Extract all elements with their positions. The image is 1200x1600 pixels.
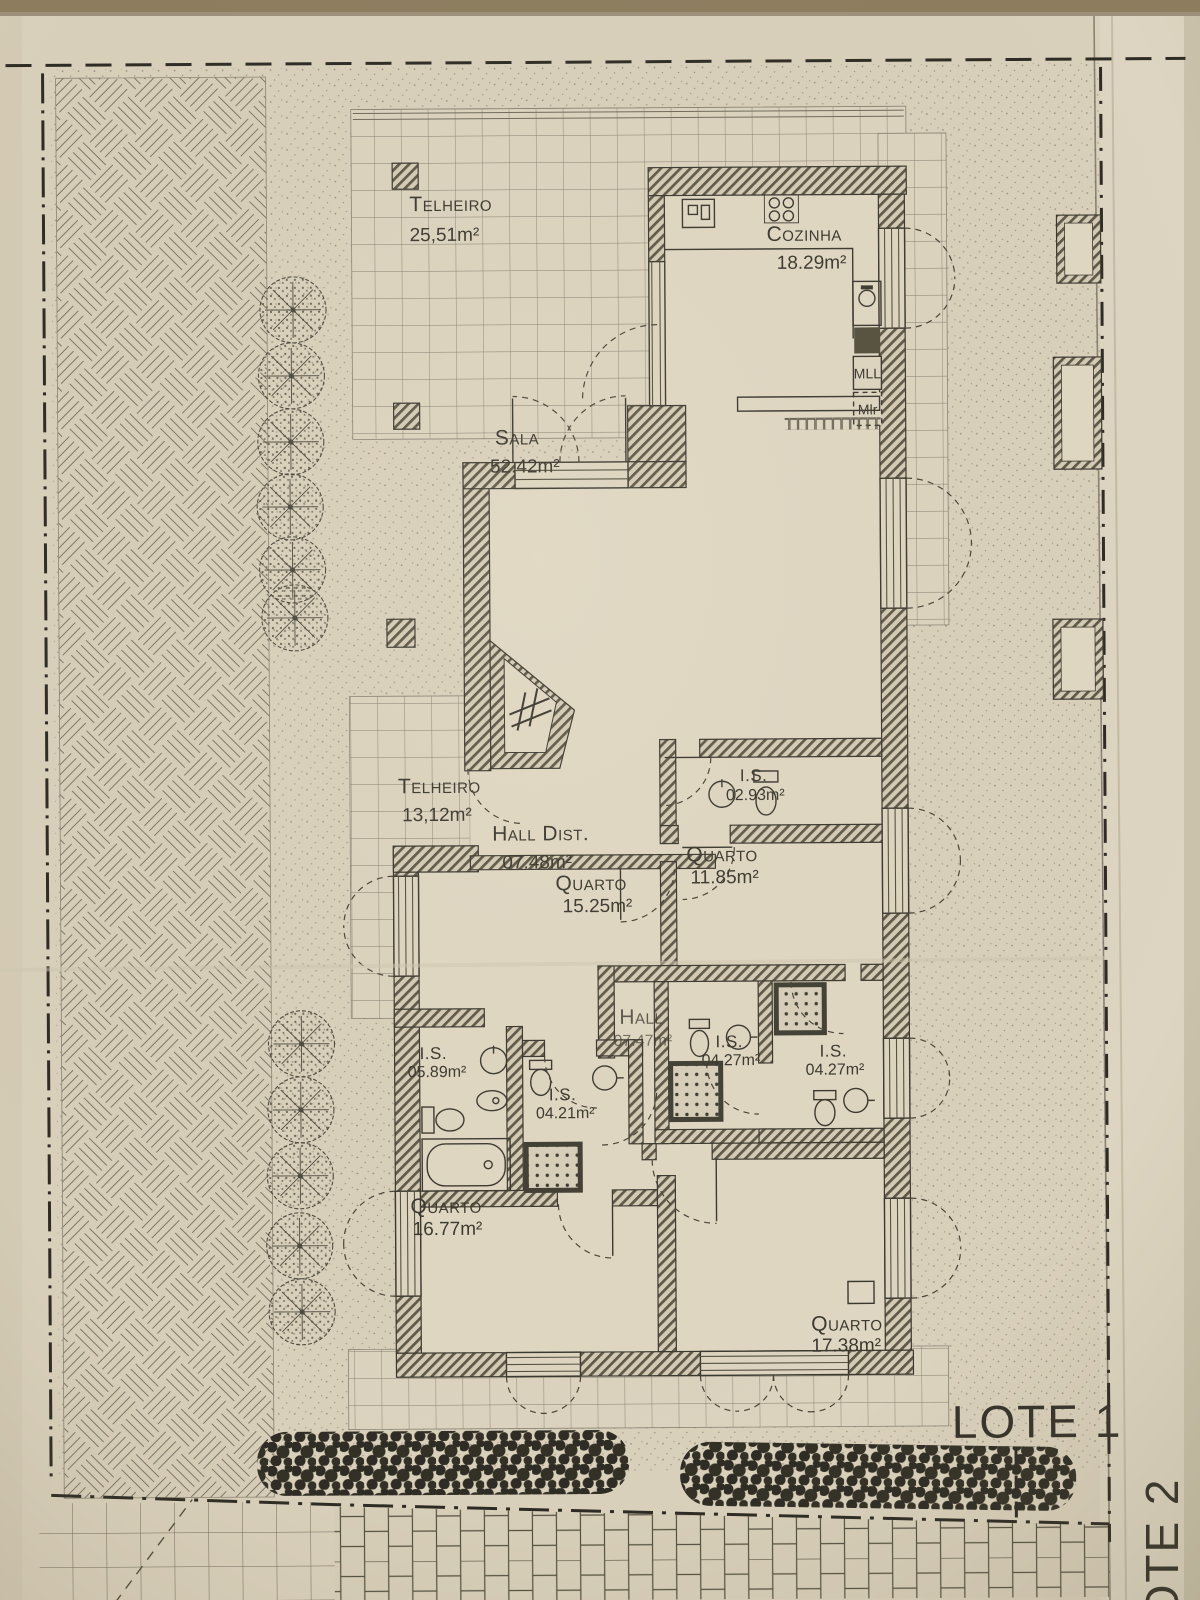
- paving-basketweave: [56, 77, 275, 1498]
- shower-icon: [671, 1063, 721, 1119]
- room-area-hall: 07.47m²: [613, 1033, 672, 1050]
- appliance-label-mll: MLL: [854, 365, 882, 381]
- sink-icon: [593, 1066, 617, 1090]
- room-label-cozinha: Cozinha: [766, 223, 841, 246]
- room-label-is-421: I.S.: [549, 1085, 577, 1104]
- room-area-is-421: 04.21m²: [536, 1105, 595, 1122]
- shower-icon: [776, 985, 824, 1033]
- room-area-is-293: 02.93m²: [726, 787, 785, 804]
- room-label-hall-dist: Hall Dist.: [492, 822, 589, 846]
- room-label-is-427-left: I.S.: [715, 1032, 743, 1051]
- room-label-is-427-right: I.S.: [819, 1041, 847, 1060]
- toilet-icon: [814, 1091, 836, 1100]
- room-area-hall-dist: 07.48m²: [502, 852, 572, 873]
- room-area-is-427-right: 04.27m²: [806, 1061, 865, 1078]
- oven-icon: [854, 327, 880, 353]
- hedge-row-left: [257, 1430, 629, 1496]
- floor-plan-photo: Telheiro 25,51m² Cozinha 18.29m² Sala 52…: [0, 0, 1200, 1600]
- room-area-telheiro-1: 25,51m²: [409, 225, 479, 246]
- room-area-quarto-16: 16.77m²: [413, 1219, 483, 1240]
- room-label-quarto-15: Quarto: [555, 872, 626, 895]
- room-area-is-427-left: 04.27m²: [702, 1052, 761, 1069]
- lot-label: LOTE 1: [952, 1395, 1123, 1448]
- toilet-icon: [422, 1107, 434, 1133]
- room-label-quarto-11: Quarto: [686, 843, 757, 866]
- driveway-tiles: [39, 1502, 338, 1600]
- room-area-sala: 52.42m²: [490, 456, 560, 477]
- photo-top-edge: [0, 0, 1200, 12]
- room-label-is-293: I.S.: [740, 766, 768, 785]
- room-area-telheiro-2: 13,12m²: [402, 805, 472, 826]
- room-label-sala: Sala: [495, 426, 539, 449]
- room-label-telheiro-1: Telheiro: [409, 193, 492, 217]
- adjacent-lot-label: LOTE 2: [1136, 1477, 1188, 1600]
- room-area-cozinha: 18.29m²: [777, 252, 847, 273]
- bidet-icon: [477, 1091, 507, 1111]
- room-label-telheiro-2: Telheiro: [398, 775, 481, 799]
- appliance-label-mlr: Mlr: [858, 401, 878, 417]
- sink-icon: [844, 1088, 868, 1112]
- room-area-quarto-15: 15.25m²: [563, 896, 633, 917]
- room-area-quarto-17: 17.38m²: [811, 1335, 881, 1356]
- room-label-is-589: I.S.: [419, 1044, 447, 1063]
- room-label-quarto-17: Quarto: [811, 1312, 882, 1335]
- site-plan: Telheiro 25,51m² Cozinha 18.29m² Sala 52…: [0, 0, 1200, 1600]
- room-area-is-589: 05.89m²: [408, 1064, 467, 1081]
- room-area-quarto-11: 11.85m²: [690, 867, 758, 888]
- radiator-icon: [785, 417, 881, 430]
- shower-icon: [526, 1144, 580, 1190]
- room-label-quarto-16: Quarto: [410, 1195, 481, 1218]
- room-label-hall: Hall: [619, 1006, 663, 1029]
- toilet-icon: [689, 1019, 709, 1028]
- toilet-icon: [530, 1060, 552, 1069]
